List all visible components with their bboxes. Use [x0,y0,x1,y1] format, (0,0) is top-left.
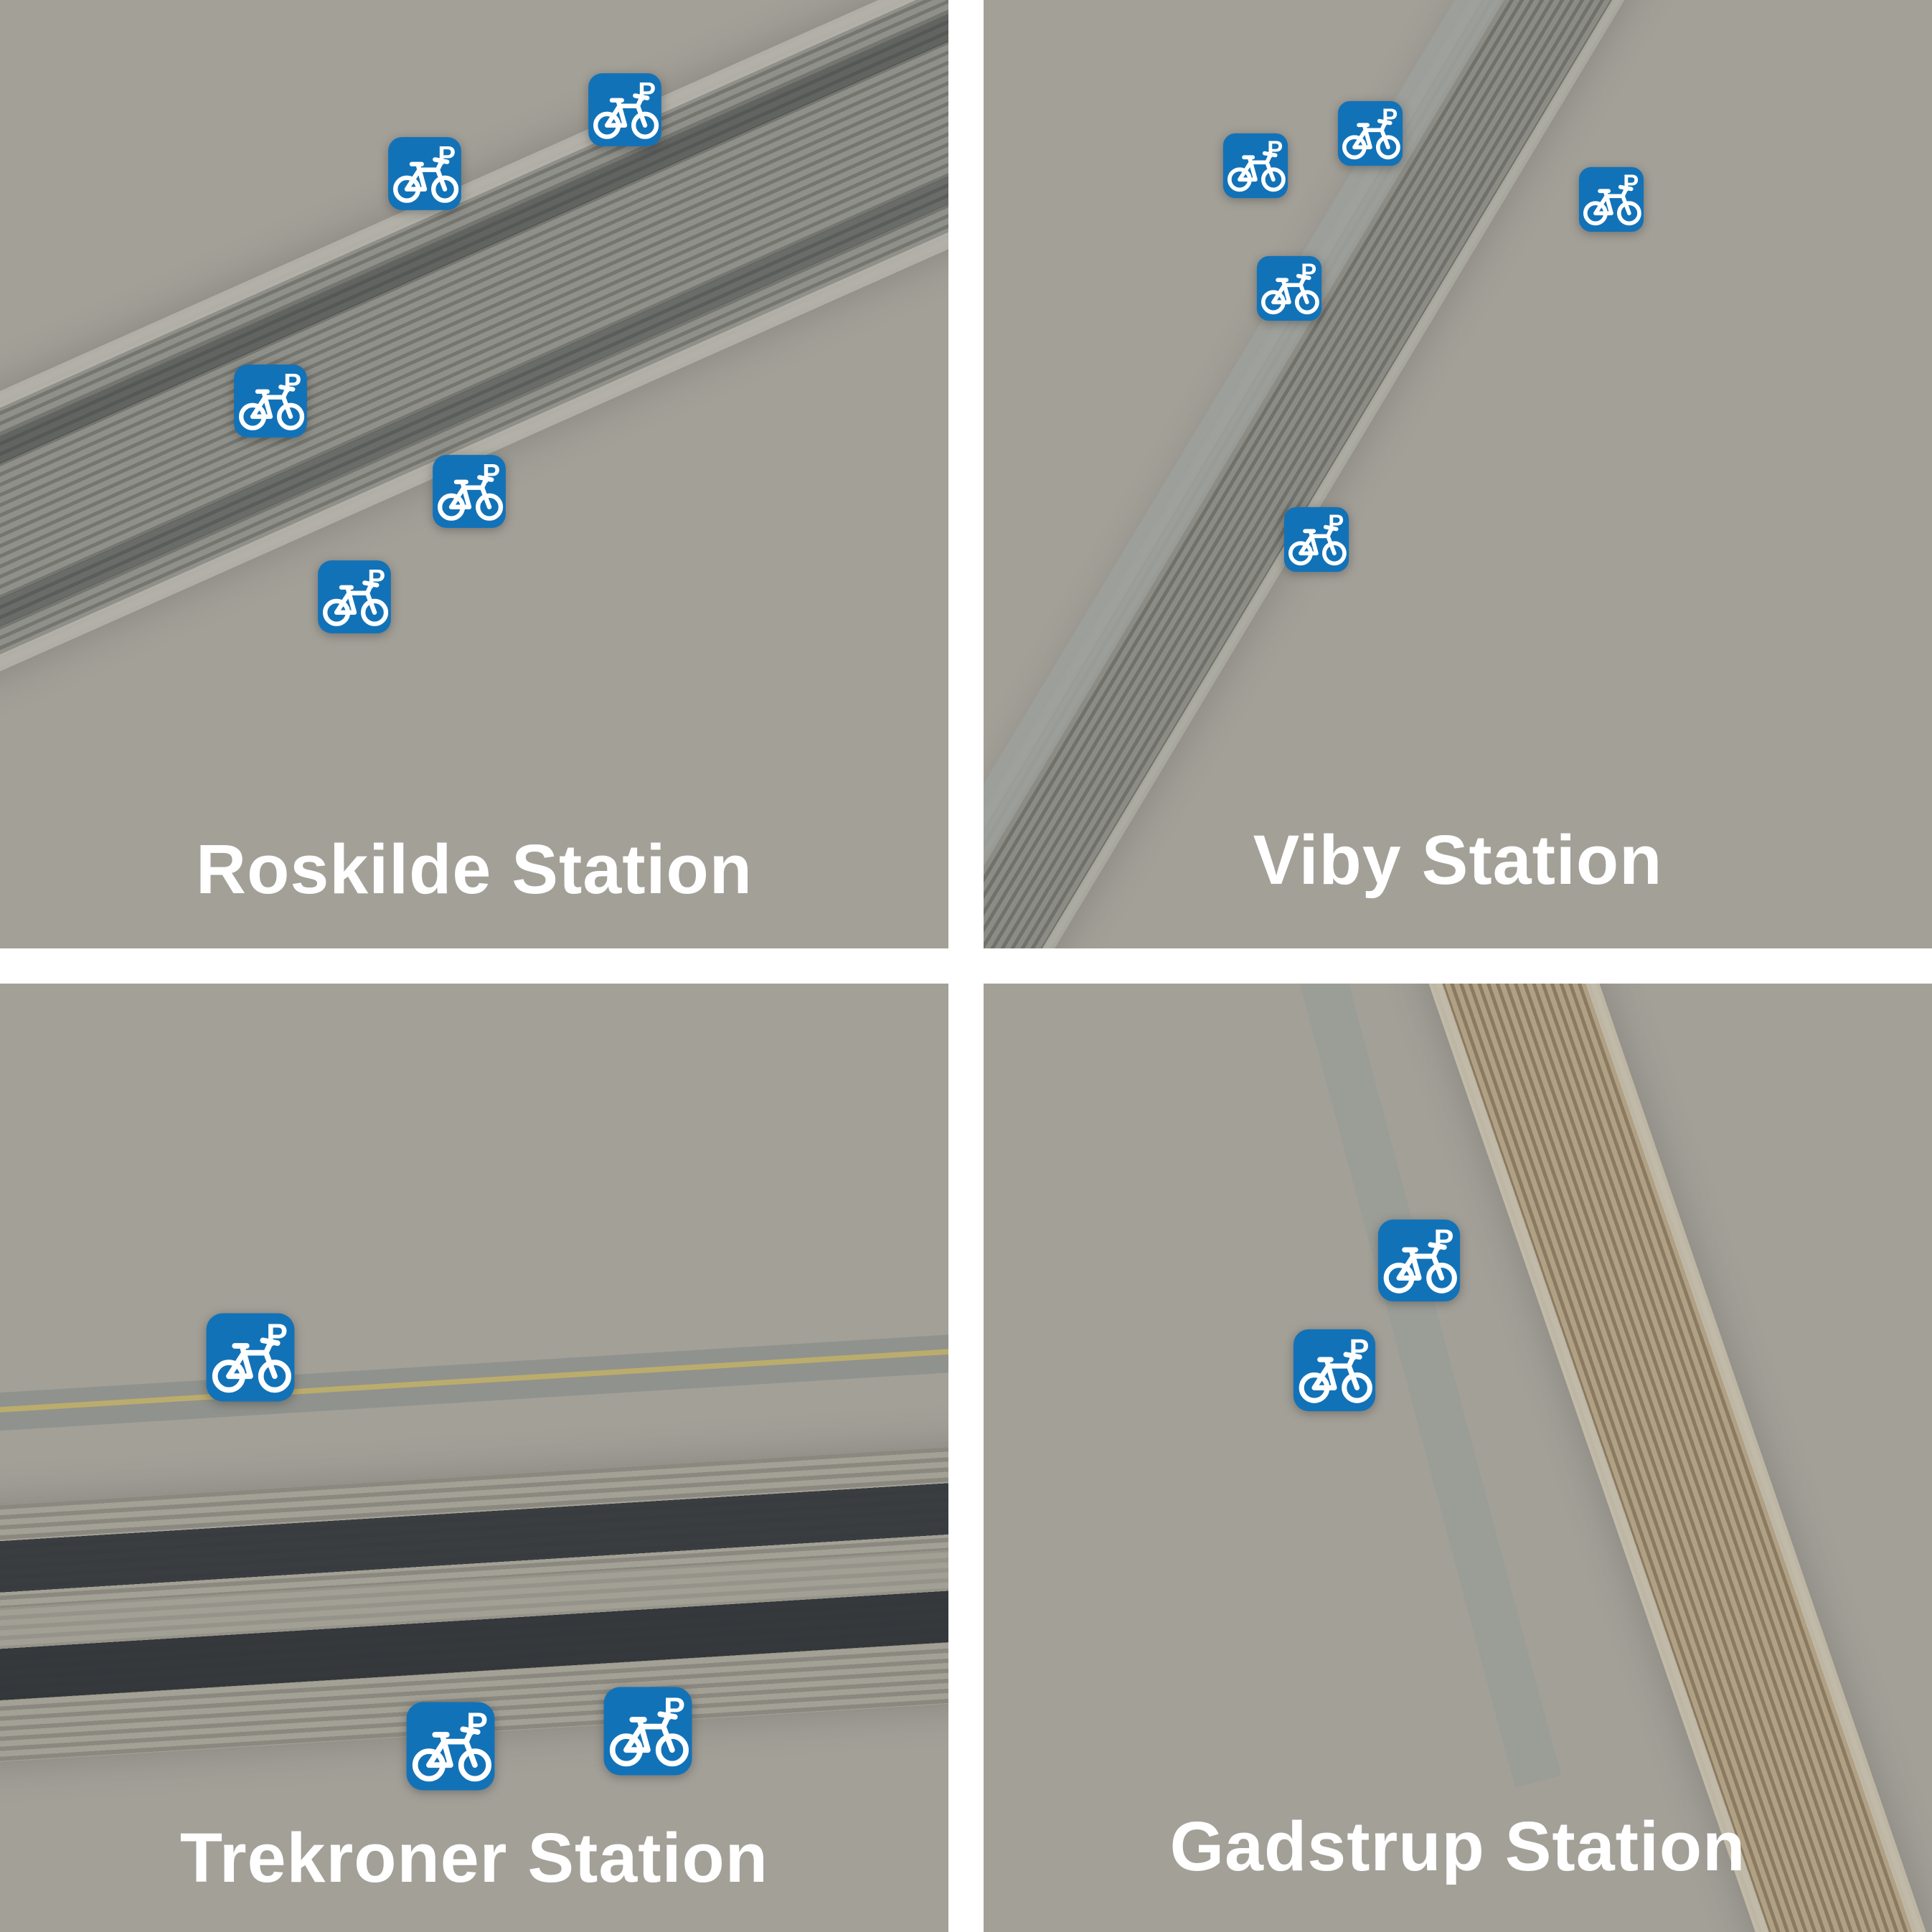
map-tile-gadstrup-station: P P Gadstrup Station [984,984,1932,1932]
bike-parking-icon: P [431,453,507,529]
bike-parking-icon: P [587,72,663,148]
bike-parking-marker: P [1376,1218,1461,1304]
bike-parking-icon: P [1337,100,1404,167]
bike-parking-icon: P [232,363,308,439]
bike-parking-marker: P [1283,506,1350,573]
bike-parking-marker: P [405,1700,496,1792]
bike-parking-marker: P [204,1311,296,1403]
bike-parking-marker: P [387,136,463,212]
station-label: Gadstrup Station [984,1806,1932,1887]
bike-parking-marker: P [1337,100,1404,167]
bike-parking-icon: P [316,559,392,635]
station-label: Trekroner Station [0,1818,948,1898]
bike-parking-icon: P [1578,166,1645,233]
bike-parking-marker: P [602,1685,694,1777]
map-tile-roskilde-station: P P P [0,0,948,948]
map-tile-viby-station: P P P [984,0,1932,948]
station-label: Viby Station [984,820,1932,900]
bike-parking-icon: P [204,1311,296,1403]
station-map-grid: P P P [0,0,1932,1932]
map-tile-trekroner-station: P P P Trekron [0,984,948,1932]
bike-parking-marker-layer: P P [984,984,1932,1932]
bike-parking-icon: P [602,1685,694,1777]
bike-parking-icon: P [1255,255,1323,322]
station-label: Roskilde Station [0,829,948,910]
bike-parking-marker-layer: P P P [0,984,948,1932]
bike-parking-marker-layer: P P P [984,0,1932,948]
bike-parking-icon: P [405,1700,496,1792]
bike-parking-icon: P [1376,1218,1461,1304]
bike-parking-marker: P [316,559,392,635]
bike-parking-marker: P [1292,1328,1377,1413]
bike-parking-marker: P [1255,255,1323,322]
bike-parking-icon: P [1222,132,1289,199]
bike-parking-marker: P [232,363,308,439]
bike-parking-icon: P [1292,1328,1377,1413]
bike-parking-marker: P [431,453,507,529]
bike-parking-icon: P [387,136,463,212]
bike-parking-icon: P [1283,506,1350,573]
bike-parking-marker: P [1222,132,1289,199]
bike-parking-marker: P [587,72,663,148]
bike-parking-marker-layer: P P P [0,0,948,948]
bike-parking-marker: P [1578,166,1645,233]
